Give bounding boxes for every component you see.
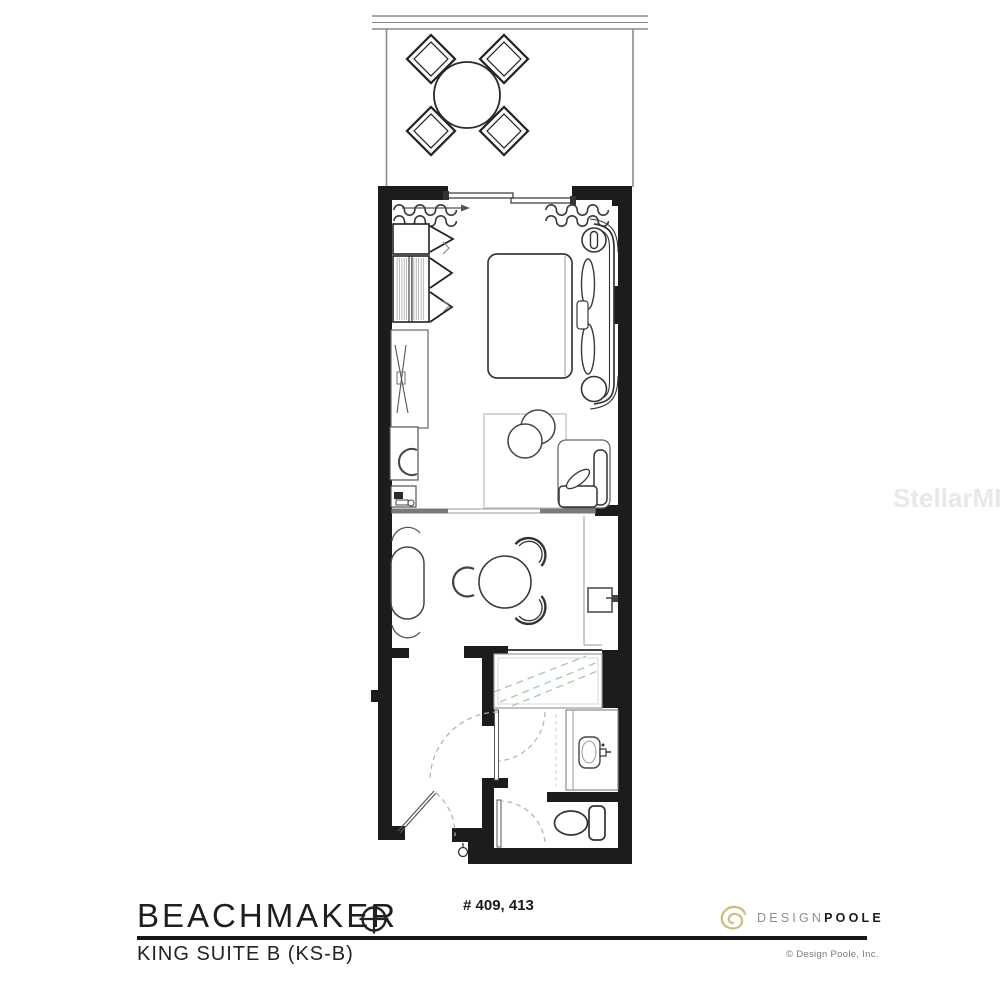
room-divider xyxy=(392,509,595,514)
bathroom xyxy=(430,650,618,847)
wc-door xyxy=(497,800,501,847)
entry xyxy=(398,791,468,857)
tv-console xyxy=(391,330,428,428)
bedroom xyxy=(390,219,618,508)
balcony-round-table xyxy=(434,62,500,128)
king-bed xyxy=(488,254,595,378)
closet xyxy=(393,224,453,322)
shower xyxy=(494,650,602,708)
dining-chair xyxy=(453,567,474,596)
floor-plan-drawing: StellarMLS xyxy=(0,0,1000,1000)
floor-plan-sheet: StellarMLS BEACHMAKER # 409, 413 DESIGNP… xyxy=(0,0,1000,1000)
faucet-icon xyxy=(600,749,606,756)
nightstand-lamp xyxy=(582,228,606,252)
chaise xyxy=(391,527,424,637)
vanity xyxy=(556,710,618,790)
nightstand-lamp xyxy=(582,377,607,402)
wall-mounted-box xyxy=(588,588,618,612)
shower-door-swing xyxy=(496,712,545,761)
pillow xyxy=(582,324,595,374)
wc-door-swing xyxy=(501,801,545,842)
ottoman xyxy=(508,410,555,458)
door-hardware-icon xyxy=(459,843,468,857)
dining-table xyxy=(479,556,531,608)
bath-door xyxy=(495,710,499,780)
sitting-area xyxy=(391,509,618,646)
desk xyxy=(390,427,418,480)
watermark: StellarMLS xyxy=(893,483,1000,513)
toilet xyxy=(555,806,606,840)
balcony xyxy=(372,16,648,187)
coffee-station xyxy=(391,486,416,507)
armchair xyxy=(558,440,610,508)
